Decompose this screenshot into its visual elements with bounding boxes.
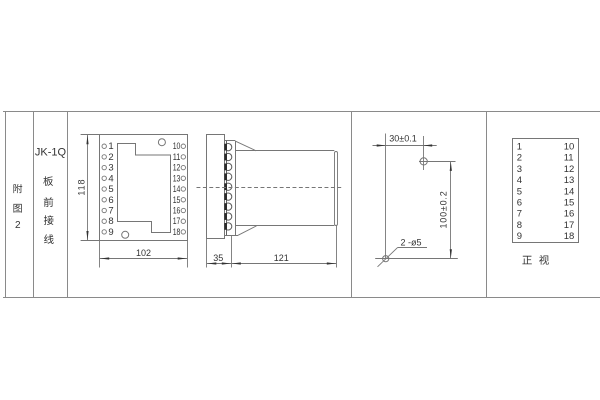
svg-text:35: 35 <box>213 253 223 263</box>
svg-text:4: 4 <box>517 175 522 186</box>
svg-text:14: 14 <box>564 186 575 197</box>
svg-text:17: 17 <box>173 216 181 227</box>
svg-text:8: 8 <box>108 216 113 227</box>
svg-text:1: 1 <box>108 141 113 152</box>
svg-text:18: 18 <box>564 231 575 242</box>
svg-text:14: 14 <box>173 184 181 195</box>
svg-text:5: 5 <box>108 184 113 195</box>
svg-text:30±0.1: 30±0.1 <box>389 134 416 144</box>
svg-text:8: 8 <box>517 220 522 231</box>
svg-text:13: 13 <box>564 175 575 186</box>
svg-text:100±0.2: 100±0.2 <box>439 190 449 228</box>
svg-text:2: 2 <box>15 220 21 231</box>
svg-text:2 -ø5: 2 -ø5 <box>400 237 421 247</box>
svg-text:15: 15 <box>173 195 181 206</box>
svg-text:11: 11 <box>564 153 574 164</box>
svg-text:12: 12 <box>173 163 181 174</box>
svg-text:7: 7 <box>108 206 113 217</box>
svg-text:9: 9 <box>517 231 522 242</box>
svg-text:12: 12 <box>564 164 575 175</box>
svg-text:4: 4 <box>108 173 113 184</box>
svg-text:18: 18 <box>173 227 181 238</box>
svg-text:10: 10 <box>564 142 575 153</box>
svg-text:6: 6 <box>517 198 522 209</box>
svg-text:2: 2 <box>517 153 522 164</box>
svg-text:121: 121 <box>274 253 289 263</box>
svg-text:1: 1 <box>517 142 522 153</box>
svg-text:102: 102 <box>136 248 151 258</box>
svg-text:JK-1Q: JK-1Q <box>35 147 67 159</box>
svg-text:17: 17 <box>564 220 575 231</box>
svg-text:10: 10 <box>173 141 181 152</box>
svg-text:16: 16 <box>564 209 575 220</box>
svg-text:11: 11 <box>173 152 181 163</box>
svg-text:3: 3 <box>108 163 113 174</box>
svg-text:9: 9 <box>108 227 113 238</box>
svg-text:6: 6 <box>108 195 113 206</box>
svg-text:13: 13 <box>173 173 181 184</box>
svg-text:118: 118 <box>76 179 86 196</box>
svg-text:7: 7 <box>517 209 522 220</box>
svg-text:2: 2 <box>108 152 113 163</box>
svg-text:16: 16 <box>173 206 181 217</box>
svg-text:5: 5 <box>517 186 522 197</box>
svg-text:3: 3 <box>517 164 522 175</box>
svg-text:15: 15 <box>564 198 575 209</box>
